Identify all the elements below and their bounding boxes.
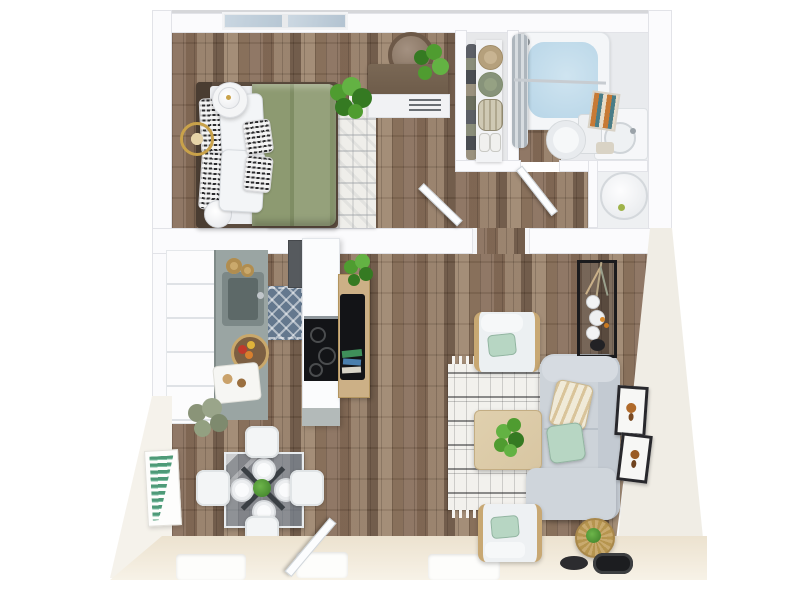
- leaf: [210, 414, 228, 432]
- monstera-plant: [326, 76, 374, 126]
- leaf: [432, 58, 449, 75]
- wall-utility-closet: [588, 160, 598, 228]
- bed-pillow-accent: [242, 155, 274, 194]
- burner: [309, 363, 323, 377]
- vase-white: [586, 295, 600, 309]
- drawer-handle: [409, 99, 441, 101]
- mint-throw-pillow: [546, 422, 587, 465]
- sofa-armrest: [542, 356, 618, 382]
- lamp-finial: [226, 95, 231, 100]
- botanical-print: [631, 460, 637, 469]
- leaf: [504, 444, 517, 457]
- botanical-print: [630, 450, 640, 460]
- kitchen-sink: [222, 272, 264, 326]
- side-table-plant: [586, 528, 601, 543]
- kitchen-faucet: [257, 292, 264, 299]
- framed-art: [616, 432, 653, 483]
- bedroom-window: [222, 12, 348, 30]
- armchair-seat: [485, 542, 525, 558]
- orange-fruit: [600, 317, 605, 322]
- dining-chair-top: [245, 426, 279, 458]
- wood-bowl: [241, 264, 254, 277]
- bar-plant: [342, 254, 376, 292]
- bed-pillow-accent: [242, 118, 274, 156]
- stove: [304, 316, 338, 381]
- storage-basket: [478, 99, 503, 131]
- passage-floor: [473, 228, 529, 254]
- food-item: [237, 378, 247, 388]
- sink-faucet: [630, 128, 636, 134]
- window-pane: [225, 15, 282, 27]
- patio-window-recess-left: [176, 554, 246, 580]
- armchair-back-cushion: [481, 314, 523, 332]
- botanical-print: [628, 413, 634, 421]
- framed-art: [614, 385, 648, 437]
- gold-accent-table: [180, 122, 214, 156]
- island-end-cap: [302, 408, 340, 426]
- sun-hat-tan: [478, 45, 503, 70]
- wall-bath-hall-right: [559, 160, 648, 172]
- dresser-plant: [410, 42, 450, 86]
- floor-plan-render: [0, 0, 800, 600]
- leaf: [418, 66, 432, 80]
- coffee-table-plant: [490, 418, 528, 460]
- vase-white: [586, 326, 600, 340]
- green-wall-art: [144, 449, 182, 527]
- fruit-orange: [245, 351, 253, 359]
- window-pane: [288, 15, 345, 27]
- leaf: [194, 420, 211, 437]
- dining-chair-left: [196, 470, 230, 506]
- wood-bowl: [226, 258, 242, 274]
- hallway-floor: [455, 172, 588, 228]
- potted-plant-sage: [184, 396, 234, 444]
- plate: [230, 478, 254, 502]
- leaf: [348, 104, 363, 119]
- cookbook: [343, 358, 361, 365]
- shoes: [490, 133, 501, 152]
- toilet-bowl: [546, 120, 586, 160]
- passage-jamb: [525, 228, 529, 254]
- black-tray-small: [560, 556, 588, 570]
- leaf: [359, 267, 373, 281]
- leaf: [348, 274, 360, 286]
- passage-jamb: [473, 228, 477, 254]
- cookbook: [342, 367, 361, 374]
- drawer-handle: [409, 109, 441, 111]
- green-art-strokes: [149, 455, 176, 520]
- mint-pillow: [490, 515, 520, 539]
- sink-basin: [228, 278, 258, 320]
- bathroom-wall-art: [587, 90, 620, 132]
- armchair-bottom: [478, 504, 542, 562]
- exterior-wall-right: [648, 10, 672, 232]
- drawer-handle: [409, 104, 441, 106]
- botanical-print: [626, 403, 637, 414]
- black-bowl: [590, 339, 605, 351]
- fruit-yellow: [247, 341, 255, 349]
- water-heater: [600, 172, 648, 220]
- food-item: [222, 373, 233, 384]
- armchair-top: [474, 312, 540, 372]
- mint-pillow: [487, 333, 517, 358]
- towel: [596, 142, 614, 154]
- shower-curtain: [512, 34, 528, 148]
- burner: [318, 347, 336, 365]
- shoes: [479, 133, 490, 152]
- centerpiece-plant: [253, 479, 271, 497]
- dining-chair-right: [290, 470, 324, 506]
- burner: [310, 327, 326, 343]
- water-heater-valve: [618, 204, 625, 211]
- orange-fruit: [604, 323, 609, 328]
- wall-middle-right: [529, 228, 652, 254]
- sun-hat-sage: [478, 72, 503, 97]
- black-tray-large: [593, 553, 633, 574]
- leaf: [507, 418, 521, 432]
- dresser-front: [368, 94, 450, 118]
